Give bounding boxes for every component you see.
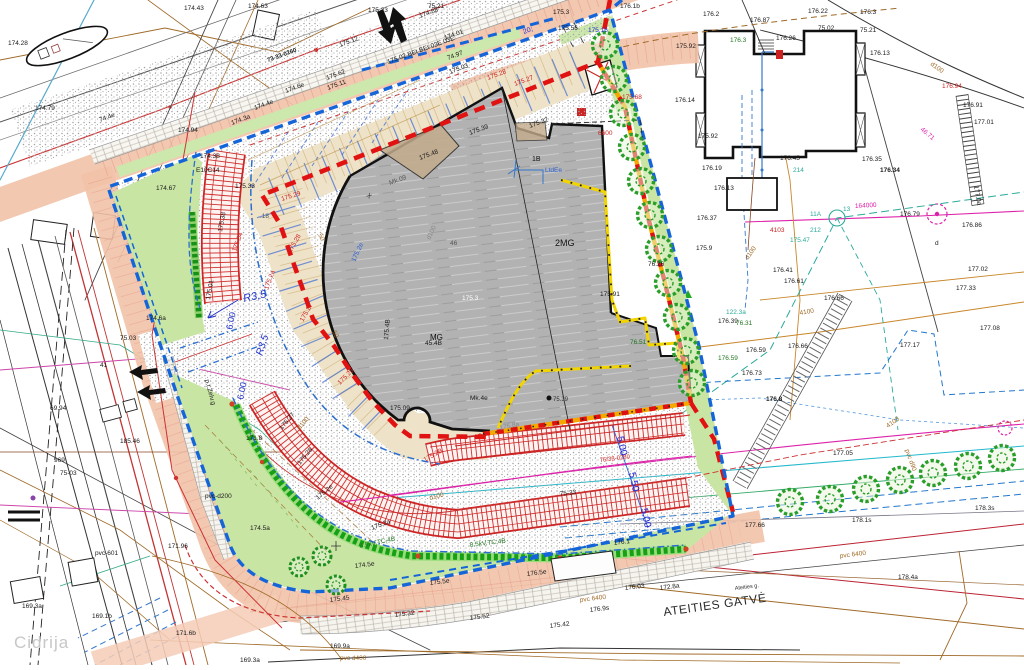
svg-text:178.4a: 178.4a [898, 574, 918, 581]
svg-text:178.3s: 178.3s [975, 505, 995, 512]
svg-text:69.94: 69.94 [50, 405, 67, 412]
svg-text:177.08: 177.08 [980, 325, 1000, 332]
svg-text:177.66: 177.66 [745, 522, 765, 529]
svg-text:176.66: 176.66 [788, 343, 808, 350]
svg-text:176.26: 176.26 [776, 35, 796, 42]
svg-text:176.19: 176.19 [702, 165, 722, 172]
svg-text:176.45: 176.45 [780, 155, 800, 162]
svg-text:174.63: 174.63 [248, 3, 268, 10]
svg-text:176.2: 176.2 [703, 11, 720, 18]
svg-text:176.94: 176.94 [942, 83, 962, 90]
svg-text:E10C14: E10C14 [196, 167, 220, 174]
svg-text:175.3: 175.3 [462, 295, 479, 302]
svg-text:169.9a: 169.9a [330, 643, 350, 650]
svg-text:76.51: 76.51 [630, 339, 647, 346]
svg-text:176.22: 176.22 [808, 8, 828, 15]
svg-text:174.6a: 174.6a [146, 315, 166, 322]
svg-text:Cidrija: Cidrija [14, 633, 69, 652]
svg-text:175.92: 175.92 [676, 43, 696, 50]
svg-text:969: 969 [54, 457, 65, 464]
svg-text:177.17: 177.17 [900, 342, 920, 349]
svg-text:177.01: 177.01 [974, 119, 994, 126]
svg-text:169.1b: 169.1b [92, 613, 112, 620]
svg-text:75.02: 75.02 [818, 25, 835, 32]
svg-text:2MG: 2MG [555, 238, 575, 248]
svg-text:164000: 164000 [855, 202, 877, 210]
svg-text:176.37: 176.37 [697, 215, 717, 222]
svg-text:122.3a: 122.3a [726, 309, 746, 316]
svg-text:176.34: 176.34 [880, 167, 900, 174]
svg-text:11A: 11A [810, 211, 822, 218]
svg-text:Mk.4e: Mk.4e [470, 395, 488, 402]
svg-text:175.3: 175.3 [553, 9, 570, 16]
svg-text:176.35: 176.35 [862, 156, 882, 163]
svg-text:174.94: 174.94 [178, 127, 198, 134]
svg-text:177.05: 177.05 [833, 450, 853, 457]
svg-text:185.46: 185.46 [120, 438, 140, 445]
svg-text:.18: .18 [260, 213, 269, 220]
svg-text:75.21: 75.21 [428, 3, 445, 10]
svg-text:175.56: 175.56 [558, 25, 578, 32]
svg-text:174.28: 174.28 [8, 40, 28, 47]
svg-text:176.79: 176.79 [900, 211, 920, 218]
svg-text:175.9: 175.9 [696, 245, 713, 252]
svg-text:174.43: 174.43 [184, 5, 204, 12]
svg-text:176.41: 176.41 [773, 267, 793, 274]
svg-text:169.3a: 169.3a [22, 603, 42, 610]
svg-text:175.91: 175.91 [600, 291, 620, 298]
svg-text:176.91: 176.91 [963, 102, 983, 109]
svg-text:pvc-d200: pvc-d200 [205, 493, 232, 500]
svg-text:175.47: 175.47 [790, 237, 810, 244]
svg-text:75.39: 75.39 [553, 397, 569, 403]
svg-text:d: d [935, 240, 939, 247]
svg-text:178.1s: 178.1s [852, 517, 872, 524]
svg-text:176.59: 176.59 [718, 355, 738, 362]
svg-text:176.86: 176.86 [962, 222, 982, 229]
svg-text:45.4B: 45.4B [425, 340, 442, 347]
svg-text:175.38: 175.38 [235, 183, 255, 190]
svg-text:75-03: 75-03 [60, 470, 77, 477]
svg-text:212: 212 [810, 227, 821, 234]
svg-text:174.5a: 174.5a [250, 525, 270, 532]
svg-text:174.79: 174.79 [35, 105, 55, 112]
svg-text:174.38: 174.38 [200, 153, 220, 160]
svg-text:pvc-601: pvc-601 [95, 550, 119, 557]
svg-text:175.09: 175.09 [390, 405, 410, 412]
svg-text:176.1b: 176.1b [620, 3, 640, 10]
svg-text:177.02: 177.02 [968, 266, 988, 273]
svg-text:46: 46 [450, 240, 458, 247]
svg-text:171.96: 171.96 [168, 543, 188, 550]
svg-text:76.26: 76.26 [648, 261, 665, 268]
svg-text:75.03: 75.03 [120, 335, 137, 342]
svg-text:171.8: 171.8 [246, 435, 263, 442]
svg-text:176.73: 176.73 [742, 370, 762, 377]
svg-text:175.92: 175.92 [698, 133, 718, 140]
svg-text:176.66: 176.66 [824, 295, 844, 302]
svg-text:214: 214 [793, 167, 804, 174]
svg-text:1B: 1B [532, 156, 541, 163]
svg-text:171.6b: 171.6b [176, 630, 196, 637]
svg-text:6600: 6600 [598, 130, 613, 137]
svg-text:176.87: 176.87 [750, 17, 770, 24]
svg-text:41: 41 [100, 362, 108, 369]
svg-text:13: 13 [843, 206, 851, 213]
svg-text:176.13: 176.13 [870, 50, 890, 57]
svg-text:76.31: 76.31 [736, 320, 753, 327]
svg-text:176.8: 176.8 [766, 396, 783, 403]
svg-text:174.67: 174.67 [156, 185, 176, 192]
svg-text:176.3: 176.3 [860, 9, 877, 16]
svg-text:176.61: 176.61 [784, 278, 804, 285]
svg-text:169.3a: 169.3a [240, 657, 260, 664]
svg-text:175.23: 175.23 [368, 7, 388, 14]
svg-text:175.68: 175.68 [622, 94, 642, 101]
svg-text:176.13: 176.13 [714, 185, 734, 192]
svg-text:4103: 4103 [770, 227, 785, 234]
svg-text:176.14: 176.14 [675, 97, 695, 104]
svg-text:177.33: 177.33 [956, 285, 976, 292]
svg-text:176.3: 176.3 [730, 37, 747, 44]
svg-text:176.59: 176.59 [746, 347, 766, 354]
svg-text:175.16: 175.16 [588, 27, 608, 34]
svg-text:75.21: 75.21 [860, 27, 877, 34]
svg-text:pvc d400: pvc d400 [340, 655, 367, 662]
svg-text:LtdEe: LtdEe [545, 167, 562, 174]
